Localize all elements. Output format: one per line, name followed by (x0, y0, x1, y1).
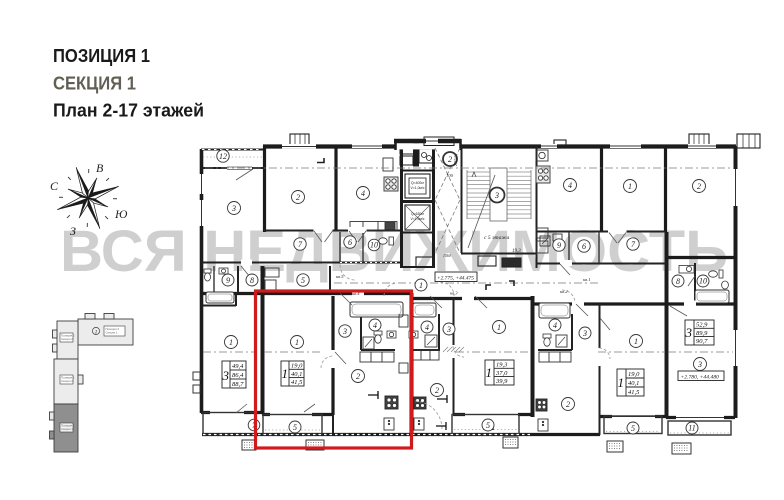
svg-text:5: 5 (293, 423, 297, 432)
svg-text:2: 2 (697, 182, 701, 191)
svg-text:9: 9 (557, 241, 561, 250)
svg-text:Секция 2: Секция 2 (61, 337, 73, 341)
svg-text:СЕКЦИЯ 1: СЕКЦИЯ 1 (53, 73, 136, 94)
svg-text:ПОЗИЦИЯ 1: ПОЗИЦИЯ 1 (53, 45, 150, 66)
svg-text:49,4: 49,4 (232, 363, 244, 370)
svg-text:52,9: 52,9 (696, 322, 708, 329)
svg-text:40,1: 40,1 (628, 380, 639, 387)
svg-text:39,9: 39,9 (495, 378, 508, 385)
svg-text:кв.1: кв.1 (583, 277, 591, 282)
svg-text:Q=400кг: Q=400кг (411, 181, 425, 185)
svg-text:90,7: 90,7 (696, 338, 708, 345)
svg-text:1: 1 (282, 366, 289, 381)
svg-text:3: 3 (342, 327, 347, 336)
svg-text:кв.5: кв.5 (336, 274, 344, 279)
svg-text:3: 3 (685, 325, 693, 340)
svg-text:89,9: 89,9 (696, 330, 708, 337)
svg-text:88,7: 88,7 (232, 381, 244, 388)
svg-text:+2.780, +44.480: +2.780, +44.480 (681, 375, 720, 381)
svg-text:Секция 1: Секция 1 (106, 331, 118, 335)
svg-text:1: 1 (486, 365, 493, 380)
svg-text:1: 1 (628, 182, 632, 191)
svg-text:5: 5 (301, 276, 305, 285)
svg-text:План 2-17 этажей: План 2-17 этажей (53, 100, 204, 121)
svg-text:41,5: 41,5 (291, 379, 303, 386)
svg-text:кв.3: кв.3 (450, 291, 458, 296)
svg-text:С: С (50, 179, 59, 193)
svg-text:В: В (96, 161, 104, 175)
svg-text:5: 5 (631, 424, 635, 433)
svg-text:Секция 2: Секция 2 (61, 379, 73, 383)
svg-text:2: 2 (448, 155, 452, 164)
svg-text:1: 1 (419, 281, 423, 290)
svg-text:Q=630кг: Q=630кг (411, 212, 425, 216)
svg-text:41,5: 41,5 (628, 389, 640, 396)
svg-text:V=1,0м/с: V=1,0м/с (411, 217, 425, 221)
svg-text:3: 3 (446, 325, 451, 334)
svg-text:5: 5 (486, 421, 490, 430)
svg-text:2755,6: 2755,6 (454, 155, 459, 166)
svg-text:86,4: 86,4 (232, 372, 244, 379)
svg-text:8: 8 (676, 277, 680, 286)
svg-text:4: 4 (568, 181, 572, 190)
svg-text:с 5 этажа: с 5 этажа (484, 235, 510, 241)
svg-text:1560: 1560 (443, 254, 451, 258)
svg-text:З: З (70, 224, 76, 238)
svg-text:3: 3 (494, 191, 499, 200)
svg-text:12: 12 (219, 152, 227, 161)
svg-text:4: 4 (425, 323, 429, 332)
svg-text:3: 3 (582, 329, 587, 338)
svg-text:40,1: 40,1 (291, 371, 302, 378)
svg-text:1: 1 (497, 323, 501, 332)
svg-text:11: 11 (688, 424, 695, 433)
svg-text:3: 3 (697, 360, 702, 369)
svg-text:6: 6 (348, 238, 352, 247)
svg-text:3: 3 (231, 204, 236, 213)
svg-text:3: 3 (222, 368, 230, 383)
svg-text:19,0: 19,0 (628, 371, 640, 378)
svg-text:19,3: 19,3 (496, 362, 508, 369)
svg-text:V=1,0м/с: V=1,0м/с (411, 186, 425, 190)
svg-text:1: 1 (618, 375, 625, 390)
svg-text:+2.775, +44.475: +2.775, +44.475 (437, 276, 474, 282)
svg-text:10: 10 (370, 241, 378, 250)
svg-text:10: 10 (699, 277, 707, 286)
svg-text:Секция 1: Секция 1 (61, 427, 73, 431)
svg-text:4: 4 (373, 321, 377, 330)
svg-text:8: 8 (250, 276, 254, 285)
svg-text:2: 2 (566, 400, 570, 409)
svg-text:19,0: 19,0 (291, 363, 303, 370)
svg-text:4: 4 (361, 189, 365, 198)
svg-text:Ю: Ю (114, 207, 128, 221)
svg-text:1: 1 (634, 337, 638, 346)
svg-text:100: 100 (446, 173, 454, 178)
svg-text:2: 2 (435, 386, 439, 395)
svg-text:1: 1 (295, 338, 299, 347)
svg-text:1: 1 (229, 338, 233, 347)
svg-text:2: 2 (356, 372, 360, 381)
svg-text:кв.2: кв.2 (560, 289, 568, 294)
svg-text:9: 9 (226, 276, 230, 285)
svg-text:19,3: 19,3 (512, 249, 521, 254)
svg-text:6: 6 (582, 242, 586, 251)
svg-text:1: 1 (95, 329, 98, 335)
svg-text:4: 4 (553, 321, 557, 330)
svg-text:2: 2 (296, 193, 300, 202)
svg-text:37,0: 37,0 (495, 370, 508, 377)
